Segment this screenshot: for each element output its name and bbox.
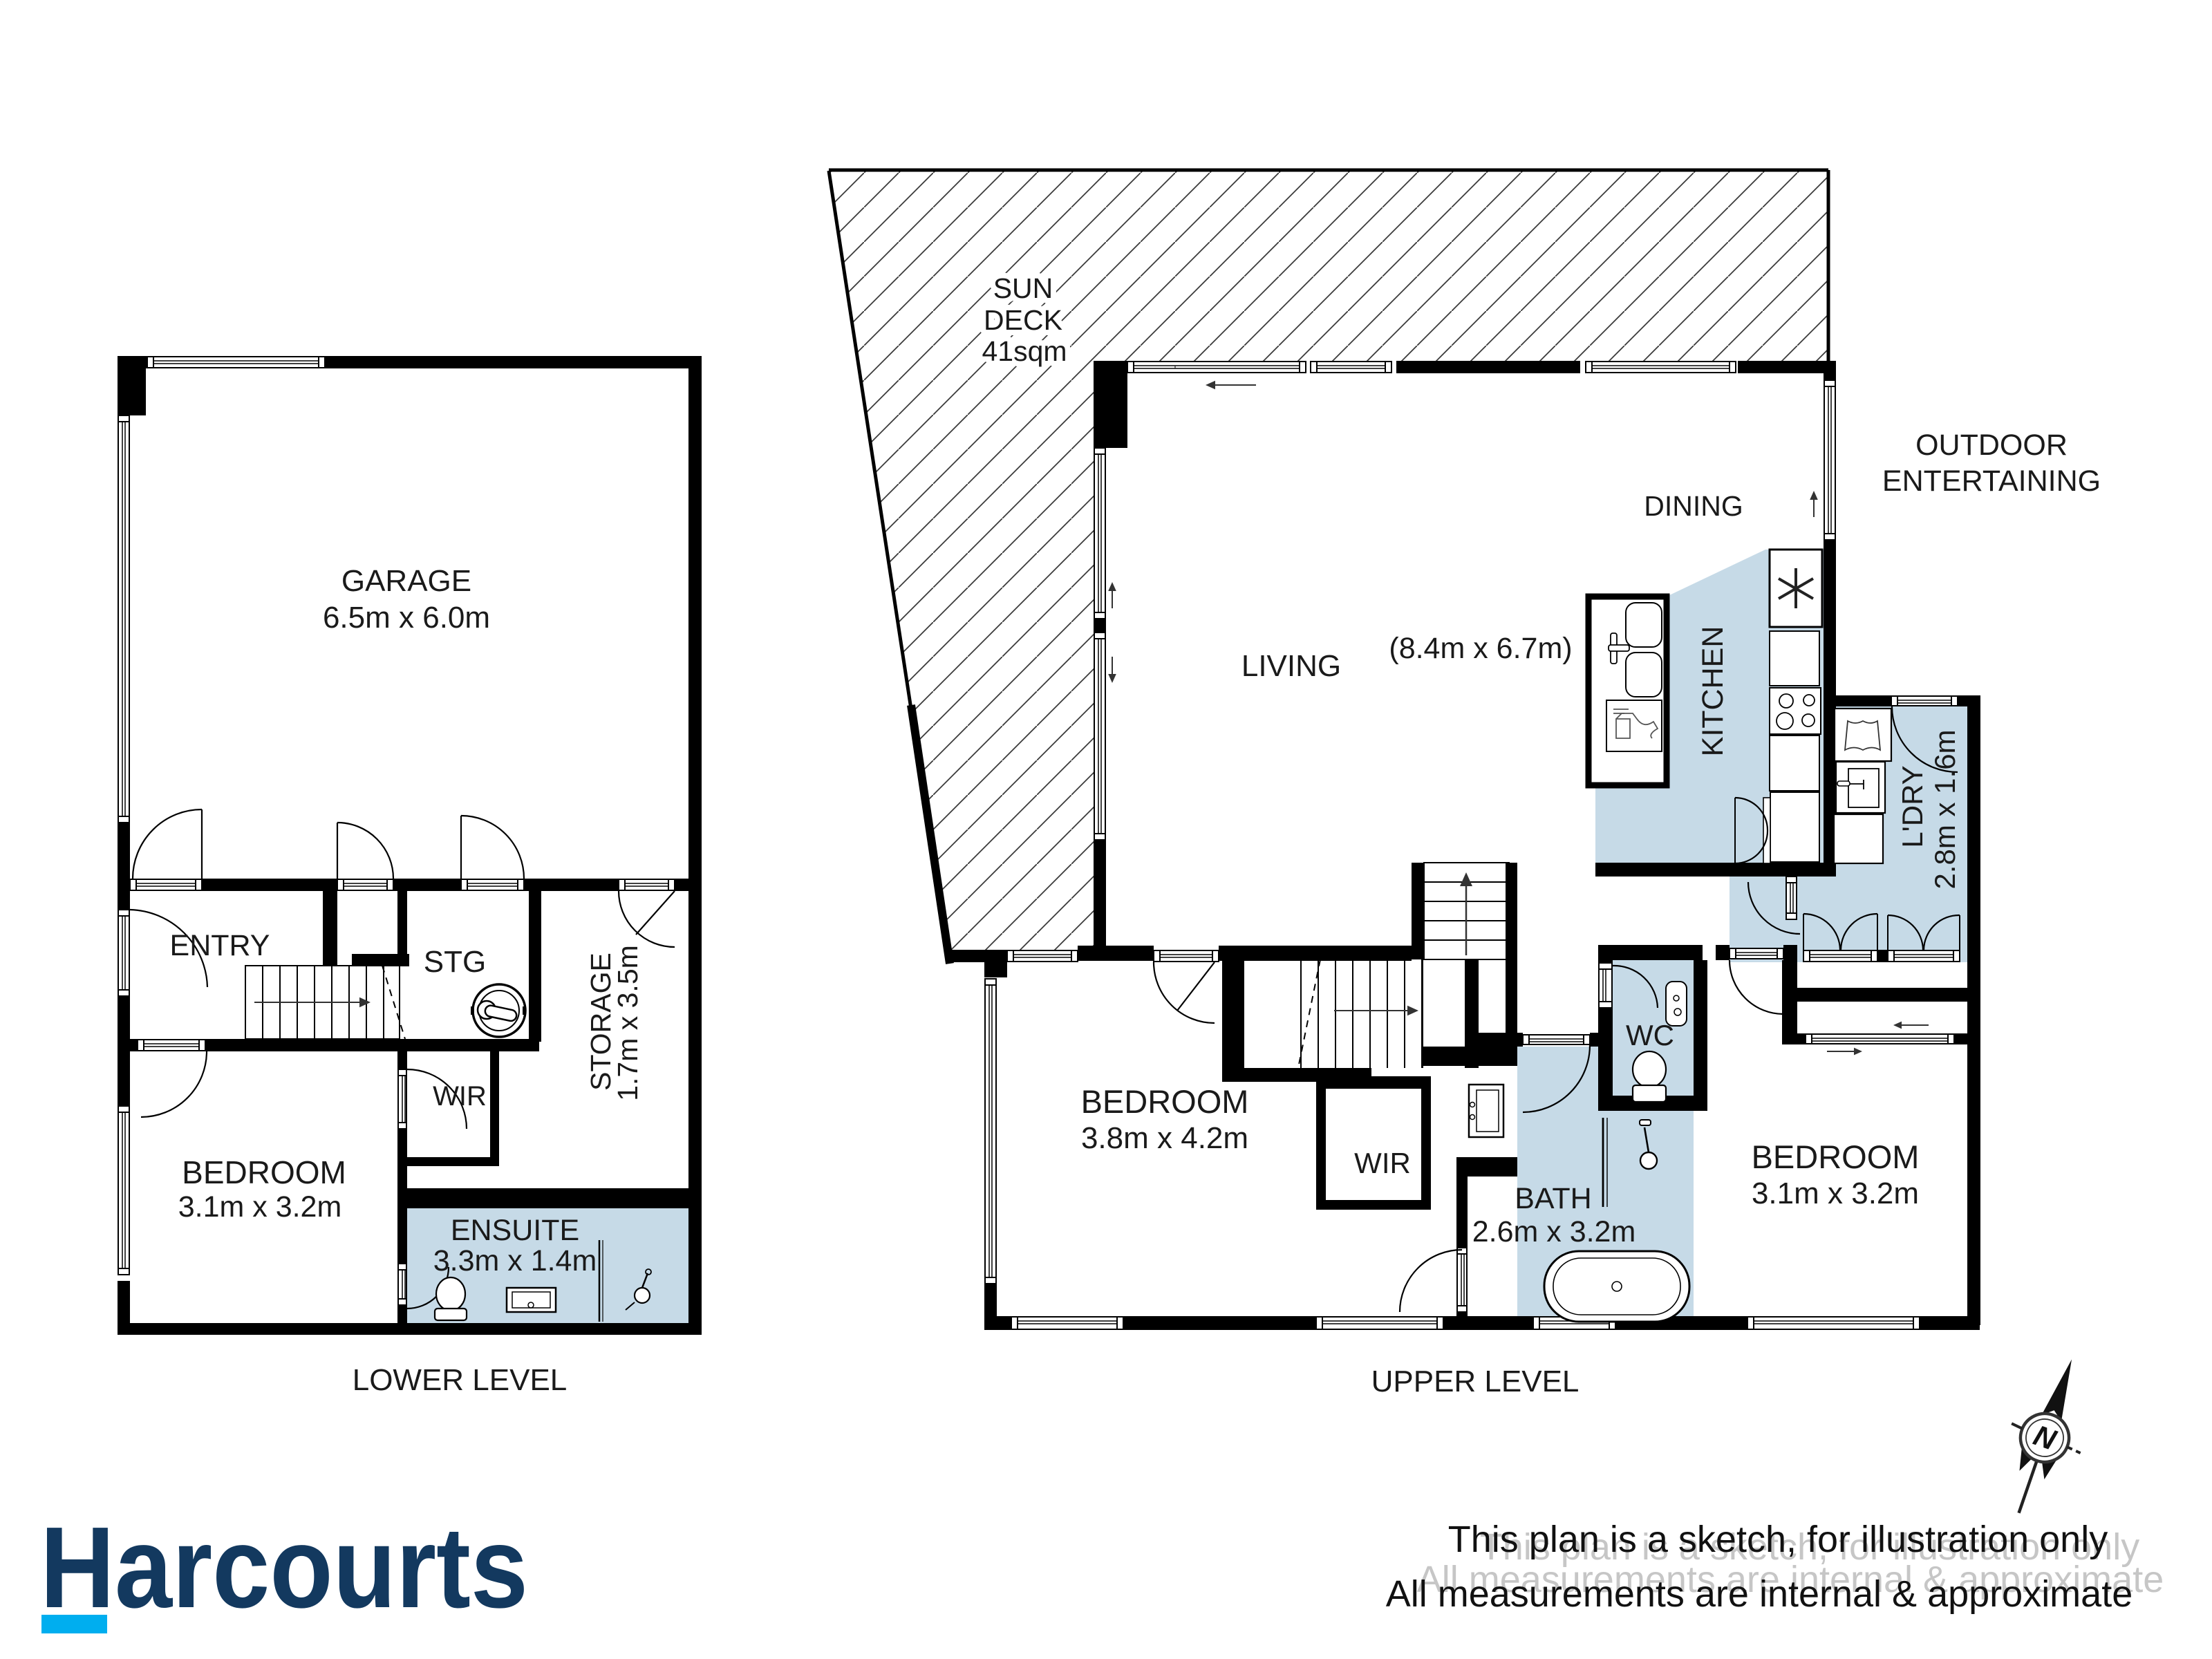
svg-text:ENTERTAINING: ENTERTAINING	[1882, 465, 2101, 498]
svg-text:(8.4m x 6.7m): (8.4m x 6.7m)	[1389, 632, 1572, 665]
svg-text:1.7m x 3.5m: 1.7m x 3.5m	[612, 945, 644, 1101]
svg-text:BEDROOM: BEDROOM	[1752, 1138, 1920, 1175]
svg-text:STG: STG	[424, 945, 486, 979]
svg-text:3.1m x 3.2m: 3.1m x 3.2m	[178, 1190, 342, 1224]
svg-text:BEDROOM: BEDROOM	[182, 1154, 346, 1190]
svg-text:This plan is a sketch, for ill: This plan is a sketch, for illustration …	[1448, 1519, 2108, 1560]
svg-text:3.1m x 3.2m: 3.1m x 3.2m	[1752, 1177, 1919, 1210]
svg-text:ENSUITE: ENSUITE	[451, 1214, 579, 1247]
svg-text:3.3m x 1.4m: 3.3m x 1.4m	[433, 1244, 597, 1277]
svg-text:GARAGE: GARAGE	[341, 564, 471, 598]
svg-text:BEDROOM: BEDROOM	[1081, 1083, 1249, 1120]
svg-text:41sqm: 41sqm	[982, 335, 1067, 367]
svg-text:6.5m x 6.0m: 6.5m x 6.0m	[323, 601, 490, 635]
svg-text:2.6m x 3.2m: 2.6m x 3.2m	[1472, 1215, 1636, 1248]
svg-text:2.8m x 1.6m: 2.8m x 1.6m	[1929, 729, 1961, 889]
svg-text:3.8m x 4.2m: 3.8m x 4.2m	[1081, 1121, 1248, 1155]
svg-text:ENTRY: ENTRY	[170, 929, 270, 962]
svg-text:WIR: WIR	[1354, 1147, 1411, 1179]
svg-text:WIR: WIR	[433, 1081, 487, 1112]
svg-text:WC: WC	[1626, 1019, 1674, 1051]
svg-text:DINING: DINING	[1644, 490, 1743, 522]
svg-text:L'DRY: L'DRY	[1896, 765, 1929, 847]
svg-text:OUTDOOR: OUTDOOR	[1915, 429, 2068, 462]
svg-text:SUN: SUN	[993, 272, 1053, 304]
svg-text:LIVING: LIVING	[1241, 649, 1341, 683]
svg-text:All measurements are internal: All measurements are internal & approxim…	[1386, 1573, 2133, 1615]
svg-text:KITCHEN: KITCHEN	[1696, 626, 1730, 757]
svg-text:BATH: BATH	[1515, 1182, 1592, 1215]
svg-text:DECK: DECK	[984, 304, 1062, 336]
svg-text:Harcourts: Harcourts	[40, 1503, 528, 1632]
svg-text:LOWER LEVEL: LOWER LEVEL	[353, 1363, 568, 1397]
svg-text:UPPER LEVEL: UPPER LEVEL	[1371, 1365, 1580, 1398]
